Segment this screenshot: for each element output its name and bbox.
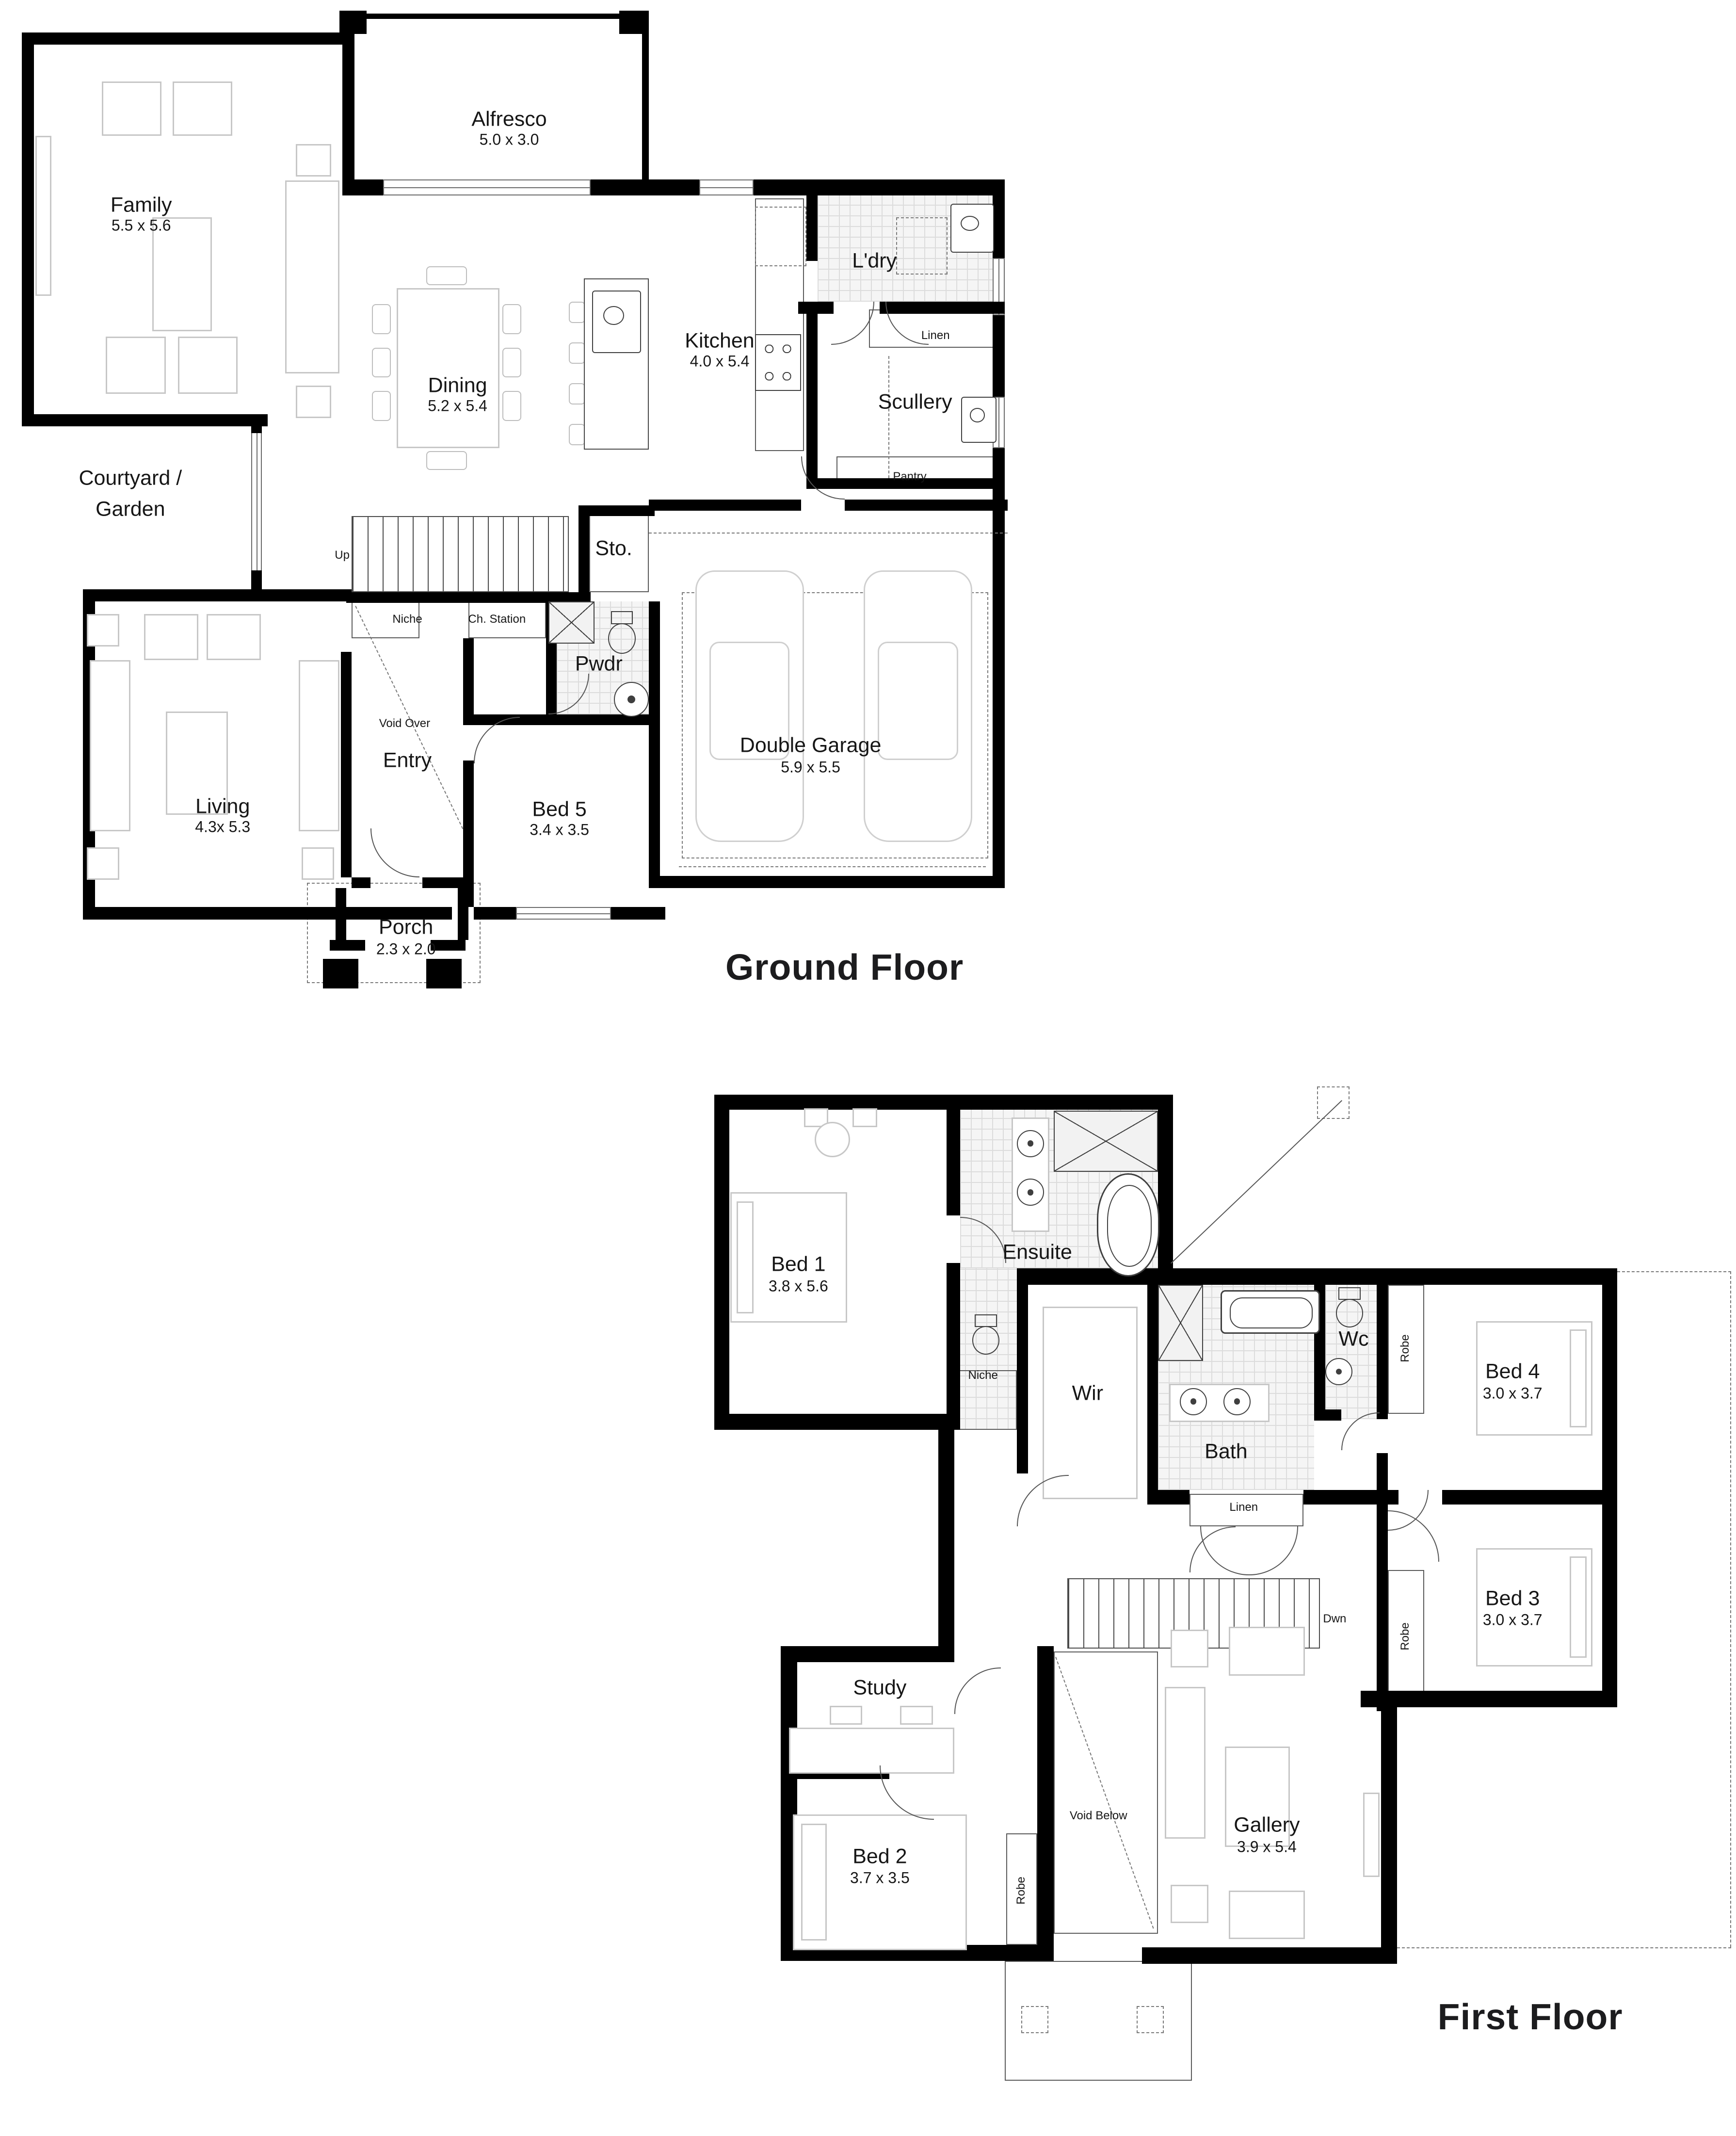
wall <box>1017 1285 1028 1473</box>
toilet-icon <box>969 1314 1002 1355</box>
furniture <box>1171 1630 1208 1667</box>
bed-head <box>1570 1329 1587 1427</box>
wall <box>1314 1409 1341 1420</box>
label-rooms-bed3-name: Bed 3 <box>1485 1586 1540 1610</box>
door-arc <box>880 1765 934 1820</box>
label-rooms-robe_bed2-name: Robe <box>1014 1877 1028 1904</box>
toilet-icon <box>1334 1287 1366 1328</box>
label-rooms-bed4-dims: 3.0 x 3.7 <box>1483 1384 1543 1402</box>
wall <box>947 1263 960 1430</box>
toilet-pan <box>1336 1299 1363 1327</box>
label-rooms-robe_bed4-name: Robe <box>1398 1335 1412 1362</box>
label-rooms-study-name: Study <box>853 1676 906 1700</box>
dashed-outline <box>1021 2006 1048 2033</box>
wall <box>1037 1646 1054 1961</box>
furniture <box>1363 1793 1380 1877</box>
furniture <box>852 1108 877 1127</box>
toilet-pan <box>972 1326 999 1355</box>
dashed-outline <box>1317 1086 1350 1119</box>
label-rooms-bed3-dims: 3.0 x 3.7 <box>1483 1611 1543 1629</box>
furniture <box>900 1706 932 1725</box>
furniture <box>1171 1885 1208 1923</box>
first-floor-plan: Bed 13.8 x 5.6EnsuiteNicheWirBathLinenWc… <box>0 0 1736 2136</box>
wall <box>1442 1490 1617 1505</box>
wall <box>714 1095 729 1430</box>
furniture <box>1229 1627 1305 1676</box>
door-arc <box>1017 1475 1068 1526</box>
floor-plan-sheet: Family5.5 x 5.6Alfresco5.0 x 3.0Dining5.… <box>0 0 1736 2136</box>
label-rooms-bed1-dims: 3.8 x 5.6 <box>769 1277 828 1295</box>
shower-icon <box>1054 1111 1158 1172</box>
bed-head <box>801 1824 827 1941</box>
door-arc <box>954 1667 1000 1714</box>
bed-head <box>1570 1556 1587 1658</box>
wall <box>714 1095 960 1110</box>
label-rooms-bed2-dims: 3.7 x 3.5 <box>850 1869 910 1887</box>
wall <box>1361 1691 1617 1707</box>
label-rooms-ensuite-name: Ensuite <box>1002 1240 1072 1264</box>
bed-head <box>737 1201 754 1313</box>
wall <box>1303 1490 1377 1505</box>
wall <box>947 1110 960 1215</box>
label-rooms-bed1-name: Bed 1 <box>771 1252 825 1276</box>
dashed-line <box>1730 1271 1731 1947</box>
label-rooms-bath-name: Bath <box>1205 1440 1247 1464</box>
toilet-tank <box>1338 1287 1361 1299</box>
door-arc <box>1249 1526 1298 1575</box>
wall <box>1381 1707 1398 1964</box>
label-rooms-void_below-name: Void Below <box>1070 1809 1127 1823</box>
toilet-tank <box>975 1314 997 1327</box>
basin-icon <box>1325 1358 1352 1385</box>
label-title: First Floor <box>1438 1996 1623 2038</box>
label-rooms-wir-name: Wir <box>1072 1381 1103 1405</box>
freestanding-bath-icon <box>1097 1173 1159 1277</box>
furniture <box>830 1706 862 1725</box>
label-rooms-linen-name: Linen <box>1229 1501 1258 1514</box>
shower-icon <box>1158 1285 1203 1361</box>
wall <box>1153 1268 1617 1285</box>
roof-line <box>1171 1100 1342 1263</box>
basin-icon <box>1180 1388 1207 1415</box>
dashed-outline <box>1137 2006 1164 2033</box>
label-rooms-niche-name: Niche <box>968 1369 998 1382</box>
furniture <box>1229 1891 1305 1940</box>
table <box>815 1122 850 1157</box>
wall <box>938 1414 955 1662</box>
label-rooms-gallery-dims: 3.9 x 5.4 <box>1237 1838 1297 1856</box>
label-rooms-wc-name: Wc <box>1339 1327 1369 1351</box>
basin-icon <box>1223 1388 1251 1415</box>
wall <box>714 1414 938 1430</box>
dashed-line <box>1617 1271 1731 1272</box>
wall <box>960 1095 1173 1110</box>
label-rooms-gallery-name: Gallery <box>1234 1813 1300 1837</box>
wall <box>1158 1110 1173 1269</box>
label-rooms-dwn-name: Dwn <box>1323 1612 1346 1626</box>
wall <box>781 1646 954 1663</box>
label-rooms-bed4-name: Bed 4 <box>1485 1360 1540 1384</box>
wall <box>1142 1947 1174 1964</box>
label-rooms-bed2-name: Bed 2 <box>852 1845 907 1868</box>
label-rooms-robe_bed3-name: Robe <box>1398 1622 1412 1650</box>
door-arc <box>1388 1510 1439 1562</box>
basin-icon <box>1017 1130 1044 1157</box>
wall <box>1158 1947 1397 1964</box>
wall <box>1377 1285 1387 1419</box>
wall <box>1147 1285 1158 1490</box>
dashed-line <box>1397 1947 1731 1948</box>
furniture <box>1165 1687 1206 1839</box>
wall <box>1147 1490 1189 1505</box>
bathtub-icon <box>1221 1290 1319 1334</box>
floor-plan-page: { "floors": { "ground": { "title": "Grou… <box>0 0 1736 2136</box>
